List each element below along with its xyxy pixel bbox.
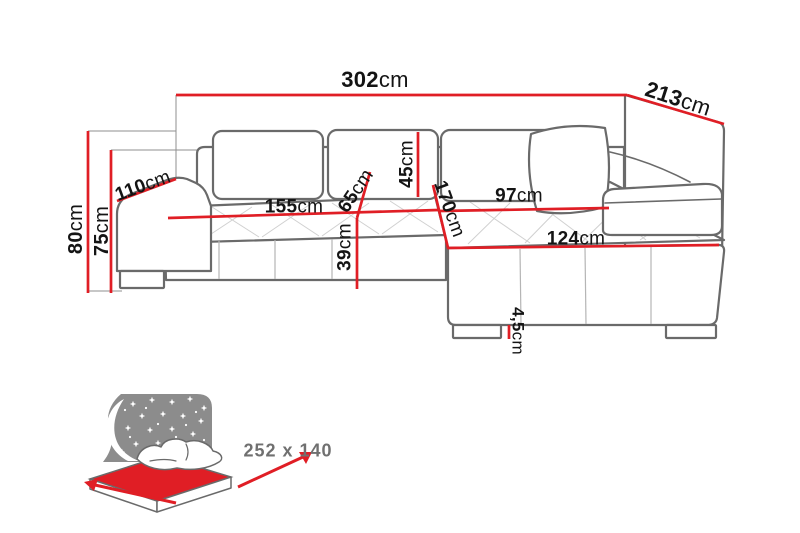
dim-unit: cm [579,229,605,250]
dim-value: 302 [341,67,379,92]
dim-unit: cm [335,223,356,249]
dim-label-seat-height: 39cm [336,223,355,271]
chaise-leg-left [453,325,501,338]
dim-unit: cm [509,332,528,355]
dim-label-seat-width: 155cm [265,198,324,217]
chaise-armrest-block [603,184,722,235]
dim-unit: cm [91,206,113,233]
dim-value: 97 [495,186,517,207]
dim-unit: cm [517,186,543,207]
dim-label-leg-height: 4,5cm [510,307,527,355]
dim-unit: cm [65,204,87,231]
dim-label-total-width: 302cm [341,69,409,91]
sleeping-area-size-label: 252 x 140 [243,441,332,462]
dim-value: 4,5 [509,307,528,332]
sofa-dimension-diagram: #art g[data-name="stars"] use{fill:#fff;… [0,0,800,533]
dim-label-frame-height: 75cm [92,206,112,256]
dim-label-chaise-seat-width: 97cm [495,187,543,206]
dim-value: 39 [335,249,356,271]
dim-value: 124 [547,229,580,250]
dim-value: 75 [91,233,113,256]
back-cushion-1 [213,131,323,199]
dim-label-total-height: 80cm [66,204,86,254]
dim-value: 80 [65,231,87,254]
dim-value: 155 [265,197,298,218]
dim-label-backrest-height: 45cm [398,140,417,188]
sofa-leg-left [120,271,164,288]
chaise-leg-right [666,325,716,338]
dim-unit: cm [297,197,323,218]
dim-value: 45 [397,166,418,188]
dim-unit: cm [379,67,409,92]
dim-unit: cm [397,140,418,166]
dim-label-chaise-width: 124cm [547,230,606,249]
